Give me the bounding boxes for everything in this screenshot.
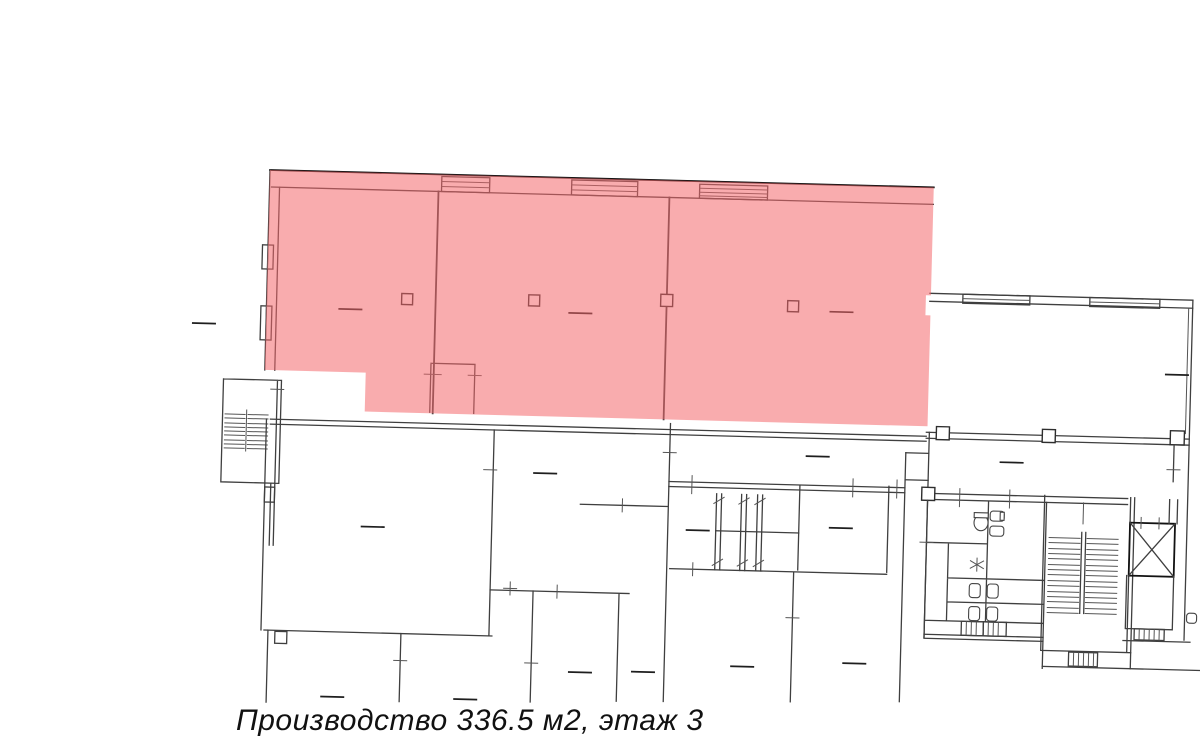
shaft-room-bottom-wall — [670, 569, 887, 575]
left-staircase — [219, 379, 284, 546]
floor-drain-symbol — [970, 557, 984, 571]
room-label-dash — [806, 456, 830, 457]
center-block-walls — [259, 413, 929, 719]
wall-tick — [393, 445, 803, 671]
room-label-dash — [1165, 374, 1189, 375]
fixture-cut — [1186, 613, 1196, 623]
room-label-dash — [686, 530, 710, 531]
door-tick — [959, 488, 1009, 508]
right-staircase — [1040, 495, 1134, 668]
right-corridor-top-wall — [926, 432, 1189, 445]
exterior-label-dash — [192, 323, 216, 324]
room-label-dash — [533, 473, 557, 474]
toilet-fixture — [969, 583, 980, 597]
threshold-hatch — [1139, 629, 1159, 641]
plan-caption: Производство 336.5 м2, этаж 3 — [236, 704, 956, 738]
shaft-room — [670, 493, 889, 582]
stair-divider — [1080, 532, 1086, 613]
mid-room-bottom-wall — [490, 590, 629, 594]
column-marker — [1170, 431, 1184, 445]
right-building-walls — [916, 293, 1200, 673]
right-outer-wall — [1184, 300, 1193, 640]
right-corridor-bottom-wall — [925, 493, 1128, 504]
big-room-right-wall — [489, 430, 494, 636]
connector-walls — [905, 453, 929, 481]
corridor-bottom-wall — [669, 482, 905, 493]
room-label-dash — [320, 650, 866, 711]
toilet-fixture — [968, 606, 979, 620]
toilet-fixture — [990, 526, 1004, 536]
stair-treads — [1047, 538, 1081, 614]
center-block-right-wall — [899, 453, 906, 702]
stair-treads — [1085, 539, 1119, 615]
room-label-dash — [1000, 462, 1024, 463]
room-label-dash — [361, 526, 385, 527]
floor-plan-page: Производство 336.5 м2, этаж 3 — [0, 0, 1200, 745]
right-top-wall — [930, 293, 1193, 308]
elevator-cross — [1129, 523, 1175, 577]
threshold-hatch — [1073, 652, 1093, 667]
production-area-highlight[interactable] — [264, 170, 934, 426]
column-marker — [1042, 429, 1055, 442]
room-label-dash — [829, 528, 853, 529]
toilet-fixture — [987, 584, 998, 598]
floor-plan — [0, 0, 1200, 745]
left-outer-wall — [261, 419, 267, 630]
column-marker — [936, 427, 949, 440]
column-marker — [922, 487, 935, 500]
right-bottom-outer-wall — [1042, 666, 1200, 671]
toilet-block — [916, 499, 1046, 668]
big-room-bottom-wall — [264, 630, 492, 636]
toilet-fixture — [986, 607, 997, 621]
